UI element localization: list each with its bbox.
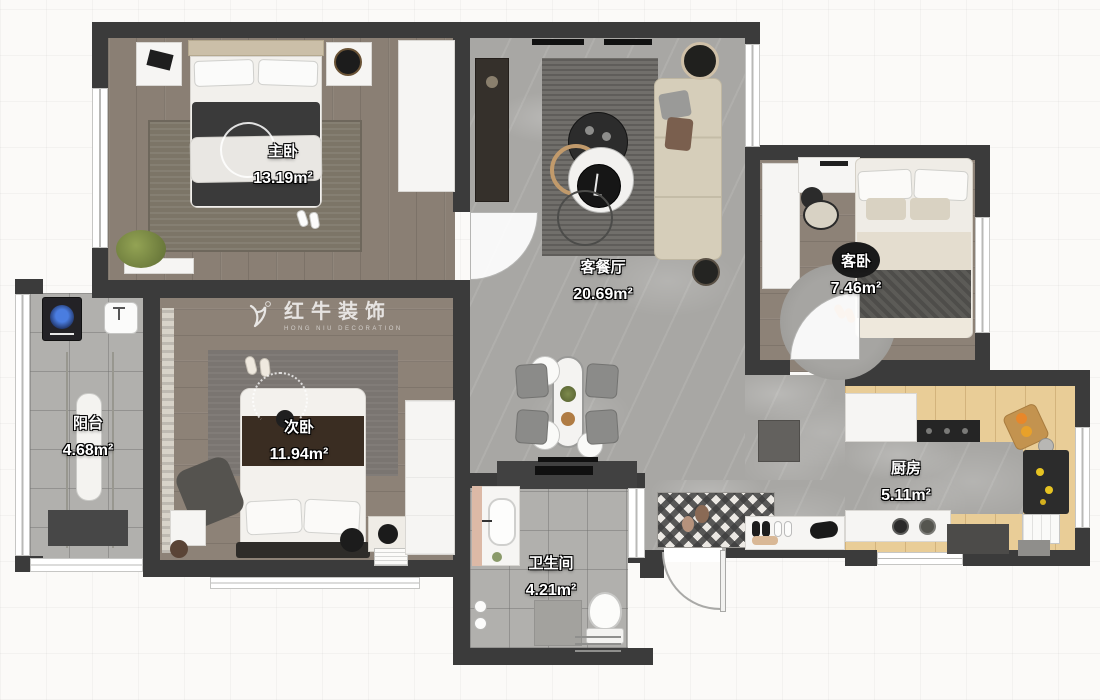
- cooktop-knob-1: [926, 428, 932, 434]
- lemon-3: [1040, 499, 1046, 505]
- washer-handle: [50, 333, 74, 335]
- dining-flowers: [560, 386, 576, 402]
- master-plant: [116, 230, 166, 268]
- towel-rack-2: [575, 643, 621, 645]
- orange-1: [1016, 413, 1027, 424]
- bench-slippers-tan: [752, 536, 778, 545]
- wall-master-living-divider: [453, 22, 470, 212]
- cooktop-knob-3: [962, 428, 968, 434]
- wall-living-right-top: [745, 22, 760, 44]
- wall-bathroom-bottom: [453, 648, 653, 665]
- bathroom-door: [628, 488, 645, 558]
- dining-chair-4: [585, 409, 619, 445]
- wall-balcony-second-divider: [143, 293, 160, 567]
- mop-sink-faucet: [118, 308, 120, 320]
- kitchen-pot-2: [919, 518, 936, 535]
- wall-kitchen-bottom-left: [845, 550, 877, 566]
- bench-shoes-black-2: [762, 521, 770, 537]
- guest-blanket-foot: [857, 318, 971, 338]
- balcony-cabinet: [48, 510, 128, 546]
- lemon-2: [1045, 486, 1053, 494]
- guest-pillow-right: [913, 169, 968, 202]
- dining-centerpiece: [561, 412, 575, 426]
- second-bedroom-window: [210, 577, 420, 589]
- coffee-table-thin-ring: [557, 190, 613, 246]
- second-ceiling-lamp: [276, 410, 294, 428]
- balcony-window-bottom: [30, 558, 143, 572]
- second-floor-basket: [170, 540, 188, 558]
- master-window: [92, 88, 108, 248]
- master-pillow-left: [194, 59, 255, 87]
- dining-chair-2: [515, 409, 549, 445]
- floor-plan: 主卧 13.19m² 客餐厅 20.69m² 客卧 7.46m² 次卧 11.9…: [0, 0, 1100, 700]
- wall-second-bottom: [143, 560, 455, 577]
- coffee-table-dark-dot1: [585, 126, 594, 135]
- vanity-backsplash: [472, 486, 482, 566]
- bathroom-sliding-door: [535, 466, 593, 475]
- second-stool-black: [340, 528, 364, 552]
- second-wardrobe: [405, 400, 455, 555]
- kitchen-marble-floor: [845, 442, 1023, 514]
- shower-fixture-2: [474, 617, 487, 630]
- wall-guest-right-top: [975, 145, 990, 217]
- living-window: [745, 44, 760, 147]
- guest-chair-seat: [803, 200, 839, 230]
- kitchen-pot-1: [892, 518, 909, 535]
- brand-name: 红牛装饰: [284, 302, 403, 322]
- kitchen-dark-counter: [947, 524, 1009, 554]
- guest-pillow-small-right: [910, 198, 950, 220]
- wall-balcony-corner-top: [15, 279, 43, 294]
- towel-rack-1: [575, 636, 621, 638]
- cooktop-knob-2: [944, 428, 950, 434]
- second-magazines: [374, 548, 408, 566]
- dining-chair-3: [585, 363, 619, 399]
- lemon-1: [1036, 468, 1044, 476]
- dining-console-edge: [538, 457, 598, 462]
- coffee-table-dark-dot2: [602, 132, 611, 141]
- wall-kitchen-right-top: [1075, 370, 1090, 427]
- wall-guest-bottom-left: [745, 360, 790, 375]
- vanity-faucet: [482, 520, 492, 522]
- guest-monitor: [820, 161, 848, 166]
- guest-pillow-left: [857, 169, 912, 202]
- brand-bull-icon: [248, 300, 276, 333]
- wall-top: [95, 22, 760, 38]
- doormat-shoe-1: [695, 505, 709, 523]
- kitchen-sink-unit: [1023, 450, 1069, 514]
- sofa-pillow-gray: [658, 90, 692, 121]
- wall-guest-living-divider: [745, 160, 760, 375]
- brand-subtitle: HONG NIU DECORATION: [284, 326, 403, 332]
- kitchen-cabinet-top: [845, 393, 917, 442]
- drying-rack-bar: [76, 393, 102, 501]
- wall-bathroom-left: [453, 473, 470, 665]
- entry-door-swing: [662, 552, 720, 610]
- mop-sink-faucet-bar: [113, 307, 125, 309]
- master-wardrobe: [398, 40, 455, 192]
- curtain-track-left: [532, 39, 584, 45]
- orange-2: [1021, 426, 1032, 437]
- wall-master-left-top: [92, 22, 108, 88]
- side-table: [681, 42, 719, 80]
- corridor-cabinet: [758, 420, 800, 462]
- dining-chair-1: [515, 363, 549, 399]
- second-duvet-brown: [242, 416, 364, 466]
- second-pillow-left: [245, 499, 303, 536]
- bath-mat: [534, 600, 582, 646]
- guest-label-bubble: [832, 242, 880, 278]
- tv-console-decor: [486, 76, 498, 88]
- balcony-window-left: [15, 294, 30, 556]
- guest-wardrobe: [762, 163, 800, 289]
- towel-rack-3: [575, 650, 621, 652]
- kitchen-small-sink: [1018, 540, 1050, 556]
- wall-second-living-divider: [453, 298, 470, 473]
- floor-plant-pot: [692, 258, 720, 286]
- master-bed-headboard: [188, 40, 324, 56]
- curtain-track-right: [604, 39, 652, 45]
- second-record-player: [378, 524, 398, 544]
- sofa-pillow-brown: [664, 117, 693, 152]
- master-pillow-right: [258, 59, 319, 87]
- guest-pillow-small-left: [866, 198, 906, 220]
- shower-fixture-1: [474, 600, 487, 613]
- doormat-shoe-2: [682, 516, 694, 532]
- kitchen-window-right: [1075, 427, 1090, 528]
- bench-shoes-black-1: [752, 521, 760, 537]
- vanity-sink: [488, 498, 516, 546]
- vanity-flower: [492, 552, 502, 562]
- bench-shoes-white-2: [784, 521, 792, 537]
- washer-drum: [50, 305, 74, 329]
- guest-window: [975, 217, 990, 333]
- bench-shoes-white-1: [774, 521, 782, 537]
- entry-door-leaf: [720, 550, 726, 612]
- wall-kitchen-top: [845, 370, 1090, 386]
- brand-watermark: 红牛装饰 HONG NIU DECORATION: [248, 300, 403, 333]
- nightstand-decor-record: [334, 48, 362, 76]
- guest-throw-herringbone: [857, 270, 971, 320]
- toilet-seat: [588, 592, 622, 630]
